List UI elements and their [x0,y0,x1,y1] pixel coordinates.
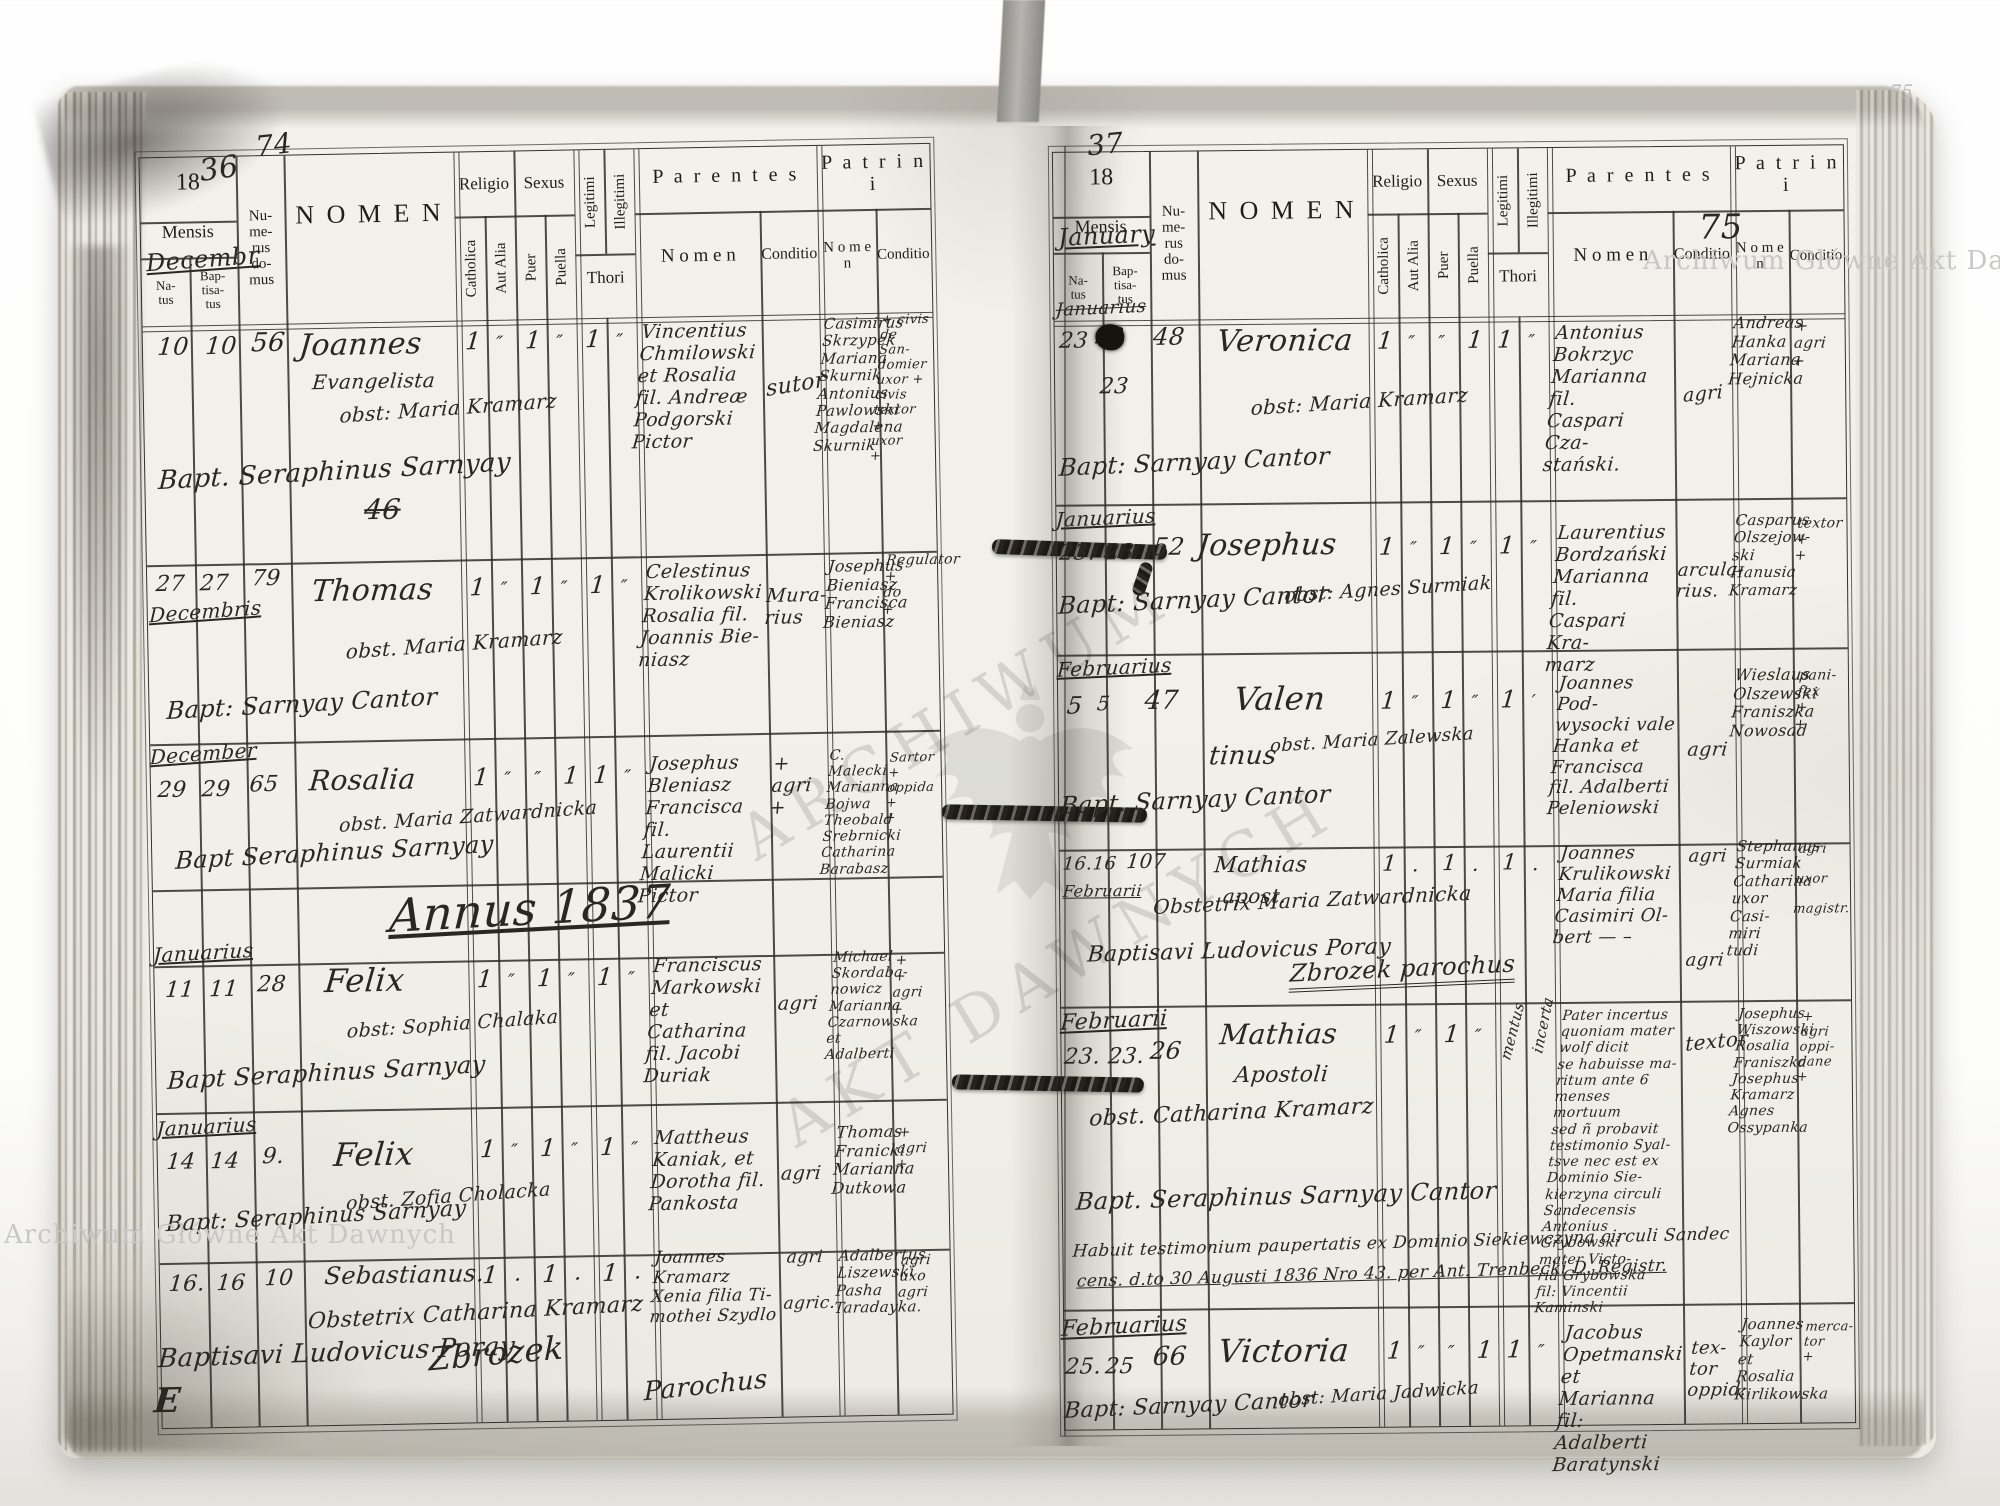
handwriting: agri [1686,738,1728,760]
col-header-puella: Puella [1460,215,1489,315]
handwriting: Veronica [1215,324,1354,360]
handwriting: 1 [1466,327,1484,355]
register-scan: { "watermarks": { "archive_name": "Archi… [0,0,2000,1506]
handwriting: Bapt Seraphinus Sarnyay [175,831,495,876]
grid-line [147,551,937,567]
handwriting: 1 [1498,532,1516,560]
col-header-sexus: Sexus [1425,169,1489,194]
handwriting: ″ [623,767,632,788]
handwriting: 1 [1499,686,1517,714]
grid-line [1730,209,1843,212]
handwriting: Bapt Seraphinus Sarnyay [167,1051,487,1096]
handwriting: Joannes Pod- wysocki vale Hanka et Franc… [1546,673,1682,820]
handwriting: ″ [1470,693,1479,714]
col-header-illegitimi: Illegitimi [605,151,635,251]
handwriting: Josephus [1195,528,1338,564]
handwriting: 23 [1104,540,1135,566]
col-header-year_prefix: 18 [1057,158,1145,199]
handwriting: 1 [1378,534,1396,562]
handwriting: Regulator + do + [881,552,937,618]
handwriting: ″ [1413,1027,1422,1048]
handwriting: Parochus [644,1364,768,1407]
handwriting: 14 [165,1149,196,1175]
handwriting: 29 [157,778,188,804]
col-header-religio: Religio [452,171,516,196]
handwriting: Laurentius Bordzański Marianna fil. Casp… [1544,521,1681,677]
col-header-parentes: P a r e n t e s [1549,162,1729,190]
handwriting: Joannes [298,327,424,364]
handwriting: 1 [1476,1337,1494,1365]
handwriting: Joannes Kaylor et Rosalia Kirlikowska [1734,1316,1800,1404]
handwriting: 1 [1381,852,1398,878]
handwriting: Adalbertus Liszewski Pasha Taradayka. [833,1247,895,1318]
handwriting: agric. [783,1294,837,1315]
col-header-thori: Thori [1490,264,1546,289]
handwriting: 1 [596,964,614,992]
col-header-nomen: N O M E N [1199,192,1365,230]
col-header-sexus: Sexus [512,170,576,195]
handwriting: 1 [584,326,602,354]
handwriting: 56 [250,328,287,359]
handwriting: ″ [619,577,628,598]
handwriting: Antonius Bokrzyc Marianna fil. Caspari C… [1542,321,1679,477]
handwriting: 10 [264,1266,295,1292]
handwriting: obst. Catharina Kramarz [1089,1094,1375,1132]
handwriting: ″ [555,333,564,354]
handwriting: Bapt. Sarnyay Cantor [1059,781,1331,821]
col-header-thori: Thori [577,265,633,290]
handwriting: 10 [204,333,238,361]
handwriting: agri [1685,950,1725,971]
handwriting: Felix [332,1135,415,1174]
handwriting: 1 [469,574,487,602]
handwriting: ″ [495,334,504,355]
handwriting: 23 [1099,374,1130,400]
handwriting: incerta [1530,995,1558,1056]
handwriting: 28 [256,972,287,998]
grid-line [1064,1302,1854,1311]
handwriting: 27 [199,571,230,597]
col-header-puella: Puella [547,216,577,316]
handwriting: agri [786,1248,824,1268]
handwriting: ″ [615,331,624,352]
handwriting: agri [1683,381,1723,407]
handwriting: ″ [630,1139,639,1160]
handwriting: . [1411,853,1420,876]
handwriting: . [633,1259,643,1285]
handwriting: Februarius [1061,1311,1188,1342]
handwriting: December [149,739,257,770]
handwriting: Bapt: Sarnyay Cantor [166,683,438,725]
col-header-religio: Religio [1365,169,1429,194]
handwriting: Josephus Bieniasz Francisca Bieniasz [822,557,884,632]
handwriting: 1 [592,762,610,790]
handwriting: ″ [1410,693,1419,714]
handwriting: ″ [1446,1343,1455,1364]
grid-line [1058,647,1848,656]
handwriting: Bapt. Seraphinus Sarnyay Cantor [1075,1177,1498,1216]
handwriting: Januarius [1055,297,1147,322]
handwriting: 66 [1151,1342,1188,1373]
handwriting: 5 [1065,693,1083,721]
handwriting: Apostoli [1233,1062,1329,1088]
handwriting: ″ [1473,1027,1482,1048]
grid-line [575,253,635,256]
handwriting: . [1471,853,1480,876]
handwriting: Evangelista [311,369,436,394]
col-header-illegitimi: Illegitimi [1519,150,1548,250]
handwriting: Sartor + oppida + + [884,750,939,826]
handwriting: 107 [1125,850,1167,874]
handwriting: Thomas [310,573,435,610]
grid-line [189,257,212,1427]
handwriting: 1 [1506,1336,1524,1364]
col-header-natus: Na- tus [143,263,188,322]
handwriting: ″ [1529,538,1538,559]
handwriting: agri uxo agri [897,1252,947,1302]
handwriting: Casimirus Skrzypek Mariana Skurnik Anton… [812,315,880,455]
handwriting: 16. [1062,854,1094,875]
handwriting: ″ [1469,539,1478,560]
right-page: 75 37 January 18MensisNa- tusBap- tisa- … [1052,144,1856,1431]
handwriting: ″ [1527,332,1536,353]
handwriting: Joannes Krulikowski Maria filia Casimiri… [1552,843,1684,949]
handwriting: 1 [472,764,490,792]
col-header-nomen: N O M E N [286,195,453,234]
handwriting: 1 [1496,326,1514,354]
handwriting: ″ [1536,1342,1545,1363]
handwriting: 29 [201,777,232,803]
handwriting: Celestinus Krolikowski Rosalia fil. Joan… [637,559,767,672]
handwriting: ″ [503,770,512,791]
handwriting: agri [777,992,819,1015]
handwriting: Casparus Olszejow- ski Hanusia Kramarz [1728,512,1792,600]
handwriting: 1 [1438,533,1456,561]
watermark-top-right: Archiwum Główne Akt Dawnych [1643,246,2000,276]
handwriting: 1 [464,328,482,356]
grid-line [1488,252,1548,254]
handwriting: ″ [559,579,568,600]
handwriting: obst: Maria Kramarz [1250,383,1468,420]
handwriting: Bapt: Sarnyay Cantor [1058,443,1331,483]
handwriting: 23 [1094,324,1125,350]
grid-line [157,1099,947,1115]
handwriting: . [513,1261,523,1287]
handwriting: Thomas Franicki Marianna Dutkowa [831,1123,893,1198]
page-number: 74 [254,127,294,163]
handwriting: ″ [567,970,576,991]
handwriting: Victoria [1217,1332,1351,1370]
grid-line [635,210,818,215]
handwriting: ″ [1409,539,1418,560]
handwriting: agri [1688,846,1728,867]
handwriting: Josephus Wiszowski Rosalia Franiszka Jos… [1727,1006,1797,1137]
grid-line [1056,497,1846,506]
grid-line [150,730,940,746]
handwriting: 26 [1149,1038,1183,1066]
handwriting: 25. [1064,1354,1103,1380]
handwriting: . [1531,852,1540,875]
handwriting: obst: Sophia Chalaka [347,1006,559,1043]
handwriting: ″ [507,972,516,993]
handwriting: ″ [533,769,542,790]
handwriting: Stephanus Surmiak Catharina uxor Casi- m… [1726,838,1796,960]
col-header-sub_nomen: N o m e n [819,243,875,268]
handwriting: merca- tor + [1802,1319,1852,1365]
handwriting: E [152,1382,182,1422]
handwriting: 1 [541,1261,559,1289]
handwriting: ″ [1407,333,1416,354]
handwriting: 25 [1104,1354,1135,1380]
handwriting: 23. [1063,1044,1102,1070]
handwriting: 75 [1888,83,1914,104]
handwriting: Mura- rius [764,584,824,629]
handwriting: obst: Maria Kramarz [339,389,557,428]
handwriting: tinus [1208,741,1278,772]
handwriting: 16. [168,1271,206,1297]
register-book: 74 36 Decembr 18MensisNa- tusBap- tisa- … [58,86,1936,1458]
handwriting: arcula- rius. [1675,560,1735,602]
handwriting: Bapt: Sarnyay Cantor [1057,581,1330,621]
handwriting: textor + + [1794,515,1845,564]
handwriting: Vincentius Chmilowski et Rosalia fil. An… [631,319,762,454]
handwriting: 1 [599,1134,617,1162]
handwriting: Bapt: Sarnyay Cantor [1063,1388,1313,1425]
handwriting: ″ [499,580,508,601]
edge-smudge [64,246,134,806]
handwriting: agri [780,1162,822,1185]
bookmark-ribbon [997,0,1045,122]
handwriting: 14 [209,1149,240,1175]
handwriting: Michael Skordaba- nowicz Marianna Czarno… [824,949,892,1064]
handwriting: 1 [601,1260,619,1288]
handwriting: Mattheus Kaniak, et Dorotha fil. Pankost… [648,1125,778,1216]
handwriting: Januarius [1055,504,1157,532]
handwriting: + agri + [769,752,825,819]
handwriting: Joannes Kramarz Xenia filia Ti- mothei S… [649,1246,806,1328]
handwriting: 1 [1379,688,1397,716]
handwriting: 79 [251,566,282,592]
handwriting: Andreas Hanka Mariana Hejnicka [1727,314,1790,389]
handwriting: 1 [479,1136,497,1164]
handwriting: 1 [1383,1022,1401,1050]
handwriting: 1 [589,572,607,600]
handwriting: 1 [1376,328,1394,356]
handwriting: Franciscus Markowski et Catharina fil. J… [643,953,774,1088]
handwriting: 16 [216,1271,247,1297]
handwriting: mentus [1498,1000,1529,1063]
handwriting: 11 [164,977,195,1003]
col-header-parentes: P a r e n t e s [636,162,816,191]
handwriting: 47 [1143,686,1180,717]
handwriting: 1 [1386,1338,1404,1366]
handwriting: 1 [1439,687,1457,715]
handwriting: + agri + [895,1124,945,1174]
watermark-bottom-left: Archiwum Główne Akt Dawnych [4,1220,456,1250]
handwriting: Sebastianus. [323,1260,485,1291]
handwriting: pani- fex + + [1794,667,1846,732]
handwriting: ″ [510,1142,519,1163]
handwriting: Obstetrix Maria Zatwardnicka [1153,882,1473,919]
grid-line [1788,210,1801,1423]
grid-line [817,208,930,212]
handwriting: 1 [536,965,554,993]
handwriting: . [573,1260,583,1286]
handwriting: ′ [1530,692,1536,713]
handwriting: 11 [208,977,239,1003]
handwriting: 1 [481,1262,499,1290]
handwriting: Januarius [153,939,254,968]
page-edge-top [64,86,1924,128]
handwriting: Felix [323,962,406,1001]
handwriting: Februarii [1062,882,1143,901]
col-header-year_prefix: 18 [144,163,233,205]
page-edge-right [1856,90,1936,1446]
handwriting: 65 [248,772,279,798]
col-header-patrini: P a t r i n i [1731,161,1843,188]
col-header-sub_nomen: N o m e n [637,243,759,269]
handwriting: Wieslaus Olszewski Franiszka Nowosad [1729,666,1794,741]
handwriting: 1 [1501,850,1518,876]
handwriting: Mathias [1218,1018,1339,1052]
handwriting: 1 [524,327,542,355]
col-header-numerus_domus: Nu- me- rus do- mus [238,178,285,319]
col-header-puer: Puer [1430,215,1459,315]
handwriting: 1 [476,966,494,994]
handwriting: + agri oppi- dane + [1796,1009,1849,1085]
handwriting: 23. [1107,1044,1146,1070]
col-header-aut_alia: Aut Alia [487,217,517,317]
handwriting: 27 [155,572,186,598]
col-header-numerus_domus: Nu- me- rus do- mus [1151,173,1196,313]
handwriting: 1 [1443,1021,1461,1049]
handwriting: obst. Maria Kramarz [346,625,564,664]
handwriting: Januarius [156,1113,257,1142]
handwriting: ″ [1416,1343,1425,1364]
col-header-patrini: P a t r i n i [818,160,930,188]
handwriting: 9. [261,1144,285,1170]
handwriting: 1 [1441,851,1458,877]
grid-line [1061,999,1851,1008]
handwriting: ″ [627,969,636,990]
handwriting: ″ [1437,333,1446,354]
handwriting: Rosalia [308,763,417,797]
handwriting: 1 [539,1135,557,1163]
handwriting: 23. [1058,540,1097,566]
handwriting: 46 [363,494,402,527]
handwriting: 52 [1152,534,1186,562]
handwriting: + + agri + [890,952,942,1018]
handwriting: Mathias [1213,852,1308,878]
col-header-baptisatus: Bap- tisa- tus [189,259,236,322]
handwriting: Valen [1232,680,1327,718]
col-header-puer: Puer [517,217,547,317]
handwriting: 1 [529,573,547,601]
handwriting: 48 [1152,324,1186,352]
handwriting: 1 [562,762,580,790]
handwriting: agri uxor magistr. [1792,841,1849,917]
col-header-aut_alia: Aut Alia [1400,215,1429,315]
handwriting: + agri + [1792,317,1843,370]
handwriting: C. Malecki Marianna Bojwa Theobald Srebr… [819,747,886,878]
col-header-sub_conditio: Conditio [761,242,817,267]
handwriting: ″ [570,1140,579,1161]
handwriting: Februarii [1060,1006,1169,1036]
handwriting: 5 [1096,692,1111,715]
handwriting: Jacobus Opetmanski et Marianna fil: Adal… [1551,1321,1688,1477]
col-header-sub_conditio: Conditio [877,242,929,267]
handwriting: 16 [1092,854,1118,875]
handwriting: 10 [156,333,190,361]
handwriting: 23 [1058,328,1089,354]
